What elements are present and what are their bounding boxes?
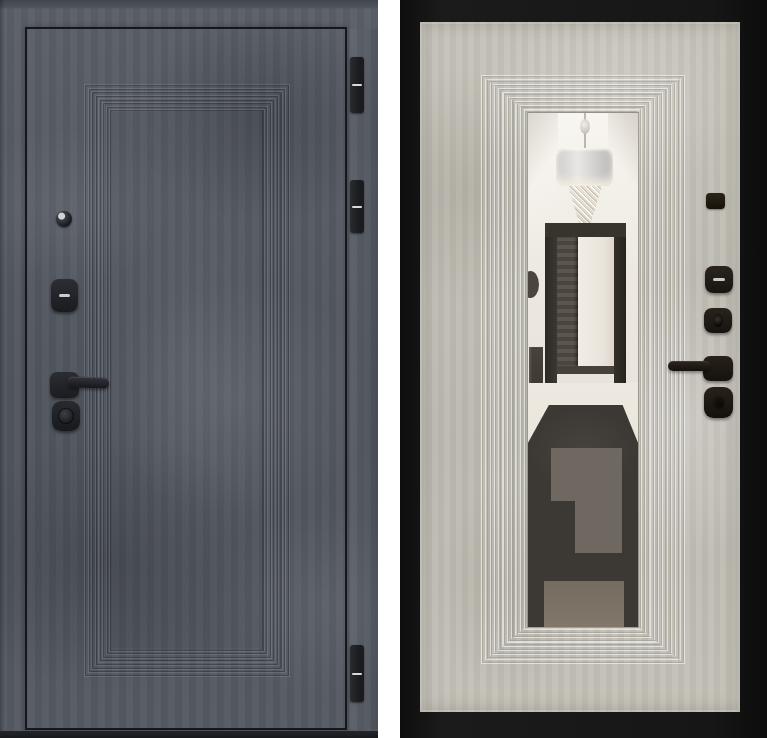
peephole-icon: [56, 211, 72, 227]
hinge-middle: [350, 180, 364, 233]
interior-handle-lever: [668, 361, 710, 371]
hinge-top: [350, 57, 364, 113]
hinge-pin-highlight: [352, 673, 362, 675]
exterior-molding-right: [262, 84, 290, 677]
exterior-frame-top-edge: [0, 0, 378, 9]
thumb-turn-slot: [713, 278, 725, 281]
keyhole-icon: [713, 314, 723, 327]
interior-molding-left: [481, 75, 527, 664]
exterior-lock-cover: [51, 279, 78, 312]
exterior-panel-field: [112, 112, 262, 648]
door-interior-view: [400, 0, 767, 738]
hinge-pin-highlight: [352, 206, 362, 208]
hinge-bottom: [350, 645, 364, 702]
mirror-insert: [527, 112, 639, 628]
exterior-frame-left-edge: [0, 0, 5, 738]
exterior-lock-cylinder: [52, 401, 80, 431]
interior-lock-cylinder: [704, 308, 732, 333]
interior-night-latch: [706, 193, 725, 209]
exterior-handle-lever: [68, 376, 109, 388]
cylinder-core: [58, 408, 74, 424]
interior-cylinder-guard: [704, 387, 733, 418]
exterior-molding-bottom: [84, 649, 290, 677]
door-exterior-view: [0, 0, 378, 738]
guard-dimple: [712, 396, 725, 410]
exterior-molding-top: [84, 84, 290, 112]
lock-cover-slot: [59, 294, 70, 297]
hinge-pin-highlight: [352, 84, 362, 86]
mirror-glare: [528, 113, 638, 627]
exterior-hinge-jamb: [349, 29, 378, 729]
door-product-photo: [0, 0, 767, 738]
exterior-frame-bottom-edge: [0, 731, 378, 738]
interior-thumb-turn: [705, 266, 733, 293]
